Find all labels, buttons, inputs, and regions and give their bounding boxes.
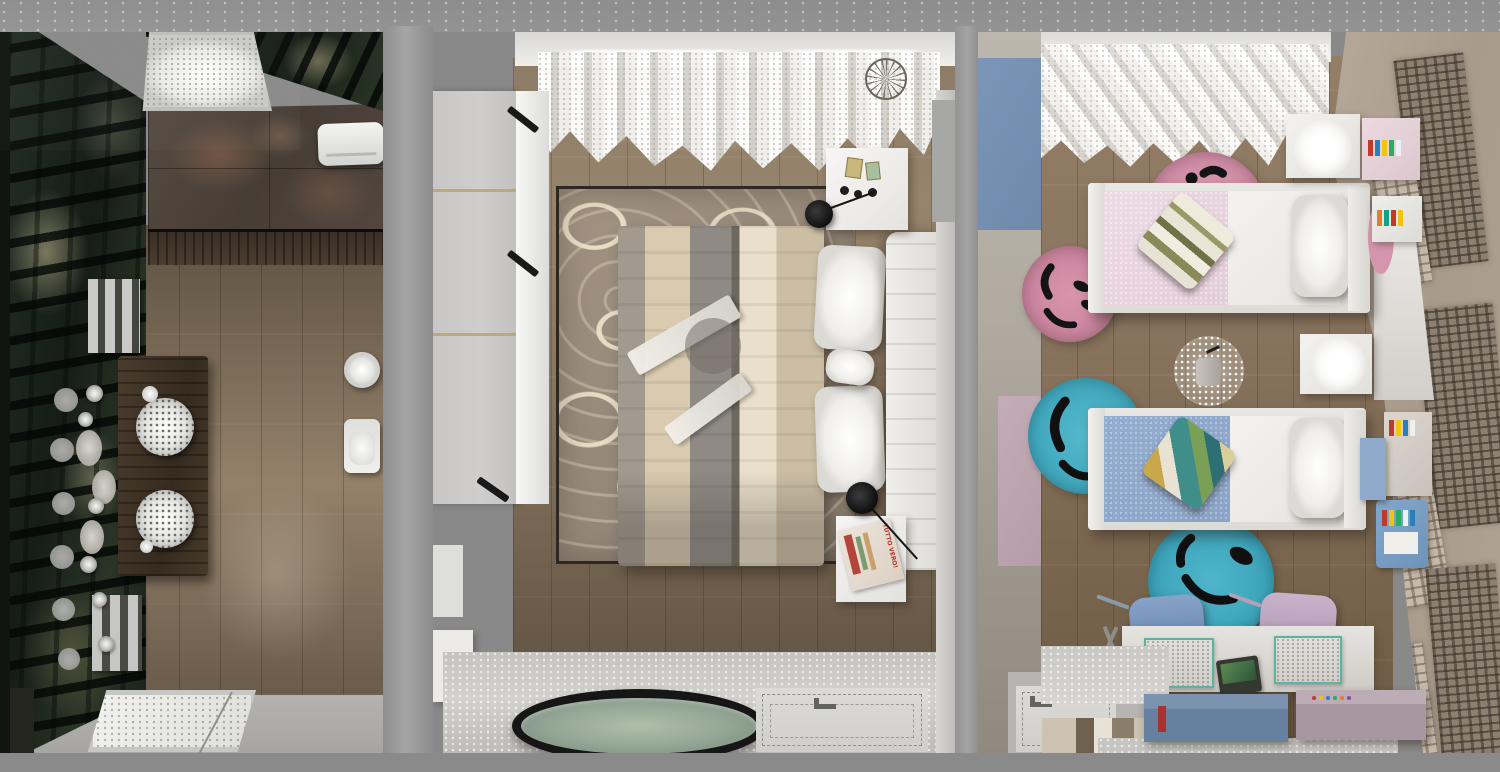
open-book: [1274, 636, 1342, 684]
room-dining: [0, 0, 433, 772]
bottom-wall: [0, 753, 1500, 772]
wardrobe-front: [516, 91, 549, 504]
book-row: [1389, 420, 1415, 436]
bed-frame-edge: [1088, 408, 1105, 530]
bed-throw-shadow: [618, 470, 824, 566]
pillow: [813, 244, 886, 351]
wall-plate: [50, 438, 74, 462]
drawer-pink: [1296, 690, 1426, 740]
left-edge: [0, 0, 10, 772]
wicker-core: [1196, 358, 1220, 386]
room-kids: [978, 0, 1500, 772]
top-wall: [0, 0, 1500, 32]
tray-table: [512, 689, 766, 763]
radiator-top: [88, 279, 140, 353]
console-counter: [148, 229, 388, 265]
side-table-blue: [1360, 438, 1386, 500]
arc-lamp-1-shade: [805, 200, 833, 228]
wine-glass: [86, 385, 103, 402]
wine-glass: [88, 498, 104, 514]
arc-lamp-2-shade: [846, 482, 878, 514]
wine-glass: [92, 592, 107, 607]
mural-building: [1425, 563, 1500, 768]
bed-1-pillow: [1292, 195, 1348, 297]
wall-plate: [52, 598, 75, 621]
plate: [76, 430, 102, 466]
wall-divider-left: [383, 26, 433, 755]
book-pages: [1384, 532, 1418, 554]
wall-plate: [50, 545, 74, 569]
pillow: [814, 385, 886, 493]
room-bedroom: TUTTO VERO!: [433, 0, 957, 772]
nightstand-top: [826, 148, 908, 230]
toilet: [344, 419, 380, 473]
wardrobe-top: [428, 91, 516, 504]
bed-2: [1088, 408, 1366, 530]
shelf-gray: [1384, 412, 1432, 496]
kids-blue-panel: [975, 58, 1041, 230]
laptop: [1216, 655, 1263, 696]
book-row: [1377, 210, 1403, 226]
photo-frame: [845, 157, 864, 179]
gold-trim: [428, 333, 516, 336]
ac-unit: [317, 122, 384, 166]
shelf-pink: [1362, 118, 1420, 180]
plate: [80, 520, 104, 554]
pencil-row: [1312, 696, 1351, 700]
door-handle: [814, 704, 836, 709]
shower-tray: [88, 690, 256, 752]
gold-trim: [428, 189, 516, 192]
glow-lamp: [1312, 338, 1366, 392]
photo-frame: [865, 161, 881, 180]
book-row: [1382, 510, 1415, 526]
wine-glass: [98, 636, 114, 652]
perfume-bottle: [840, 186, 849, 195]
skylight: [140, 31, 272, 111]
wall-plate: [58, 648, 80, 670]
apartment-top-view: TUTTO VERO!: [0, 0, 1500, 772]
glow-lamp: [1294, 120, 1352, 178]
bench-1: [433, 545, 463, 617]
door-outline: [770, 704, 914, 738]
wine-glass: [78, 412, 93, 427]
wash-basin: [344, 352, 380, 388]
teapot-icon: [140, 540, 153, 553]
shelf-white: [1372, 196, 1422, 242]
bed-1: [1088, 183, 1370, 313]
bed-2-pillow: [1290, 418, 1346, 518]
drawer-blue: [1144, 694, 1288, 742]
wine-glass: [80, 556, 97, 573]
teapot-icon: [142, 386, 158, 402]
bed-fold-shadow: [685, 318, 741, 374]
bed-headboard: [1348, 185, 1370, 311]
book-row: [1368, 140, 1401, 156]
placemat-1: [136, 398, 194, 456]
wall-plate: [54, 388, 78, 412]
book-bin: [1376, 500, 1428, 568]
bedroom-door: [756, 688, 928, 752]
wall-divider-right: [955, 26, 978, 755]
wall-plate: [52, 492, 75, 515]
wire-pendant: [865, 58, 907, 100]
bed-frame-edge: [1088, 183, 1105, 313]
